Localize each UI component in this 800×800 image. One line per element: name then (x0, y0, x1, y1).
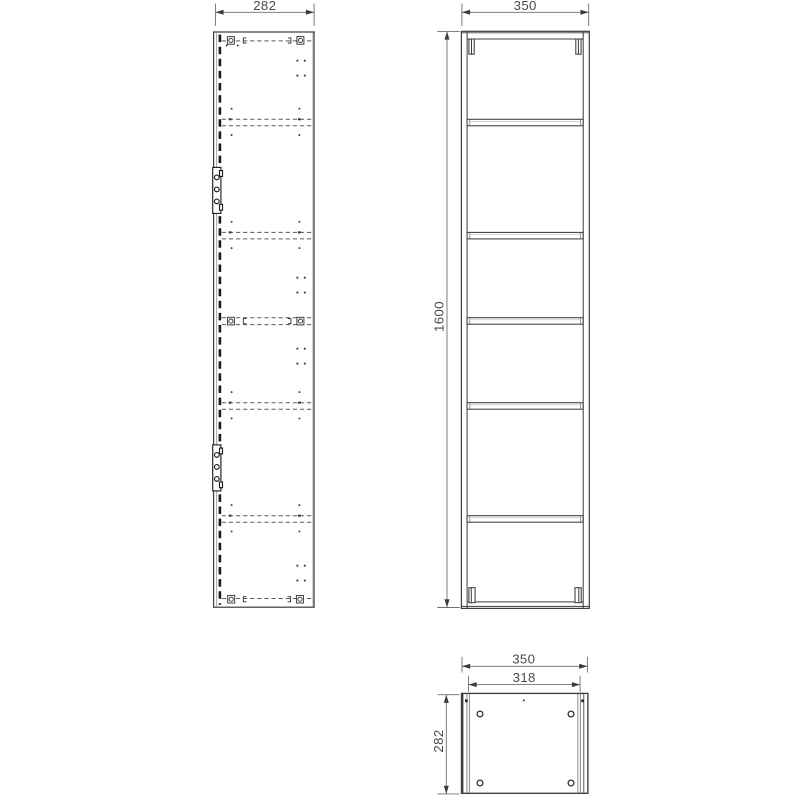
front-height-label: 1600 (432, 301, 447, 332)
dim-arrow (572, 682, 580, 687)
cam-fitting-icon (228, 595, 235, 603)
bracket-mark-icon (243, 319, 246, 324)
drill-hole-dot (237, 45, 239, 47)
dim-arrow (581, 10, 589, 15)
hanging-bracket-icon (576, 39, 581, 54)
cam-fitting-icon (227, 37, 234, 45)
mounting-hole (477, 711, 483, 717)
bottom-inner-width-dimension: 318 (469, 670, 581, 692)
bracket-mark-icon (243, 597, 246, 602)
bottom-depth-dimension: 282 (431, 695, 460, 794)
dim-arrow (215, 10, 223, 15)
corner-bracket-icon (469, 588, 475, 603)
cabinet-technical-drawing: 282 (0, 0, 800, 800)
shelf (467, 403, 583, 410)
bracket-mark-icon (288, 597, 291, 602)
corner-fixing-mark (465, 700, 468, 703)
mounting-hole (568, 711, 574, 717)
dim-arrow (579, 664, 587, 669)
hanging-bracket-icon (469, 39, 474, 54)
adjustable-shelf-hidden (222, 108, 313, 136)
bottom-inner-width-label: 318 (513, 670, 536, 685)
side-width-label: 282 (253, 0, 276, 13)
front-width-label: 350 (514, 0, 537, 13)
drill-hole-grid (296, 348, 306, 365)
mounting-hole (477, 780, 483, 786)
bracket-mark-icon (288, 319, 291, 324)
drill-hole-grid (296, 60, 306, 77)
bottom-body-outline (462, 693, 588, 793)
dim-arrow (444, 695, 449, 703)
shelf (467, 516, 583, 523)
shelf (467, 318, 583, 325)
cam-fitting-icon (297, 317, 304, 325)
dim-arrow (469, 682, 477, 687)
adjustable-shelf-hidden (222, 504, 313, 532)
side-view: 282 (213, 0, 315, 607)
hinge-icon (213, 167, 223, 213)
corner-fixing-mark (581, 700, 584, 703)
drill-hole-grid (296, 565, 306, 582)
front-height-dimension: 1600 (432, 31, 460, 607)
front-view: 350 1600 (432, 0, 590, 608)
cam-fitting-icon (227, 317, 234, 325)
drawing-svg: 282 (0, 0, 800, 800)
hinge-icon (213, 445, 223, 491)
corner-bracket-icon (575, 588, 581, 603)
shelf (467, 119, 583, 126)
dim-arrow (306, 10, 314, 15)
adjustable-shelf-hidden (222, 221, 313, 249)
dim-arrow (462, 664, 470, 669)
side-width-dimension: 282 (215, 0, 314, 26)
cam-fitting-icon (297, 37, 304, 45)
shelf (467, 232, 583, 239)
bottom-outer-width-label: 350 (512, 652, 535, 667)
bottom-view: 350 318 282 (431, 652, 588, 794)
dim-arrow (445, 31, 450, 39)
center-pilot-dot (523, 699, 525, 701)
dim-arrow (462, 10, 470, 15)
mounting-hole (568, 780, 574, 786)
cam-fitting-icon (296, 595, 303, 603)
adjustable-shelf-hidden (222, 391, 313, 419)
drill-hole-dot (226, 45, 228, 47)
front-width-dimension: 350 (462, 0, 589, 26)
drill-hole-grid (296, 277, 306, 294)
dim-arrow (445, 599, 450, 607)
bottom-depth-label: 282 (431, 729, 446, 752)
dim-arrow (444, 786, 449, 794)
